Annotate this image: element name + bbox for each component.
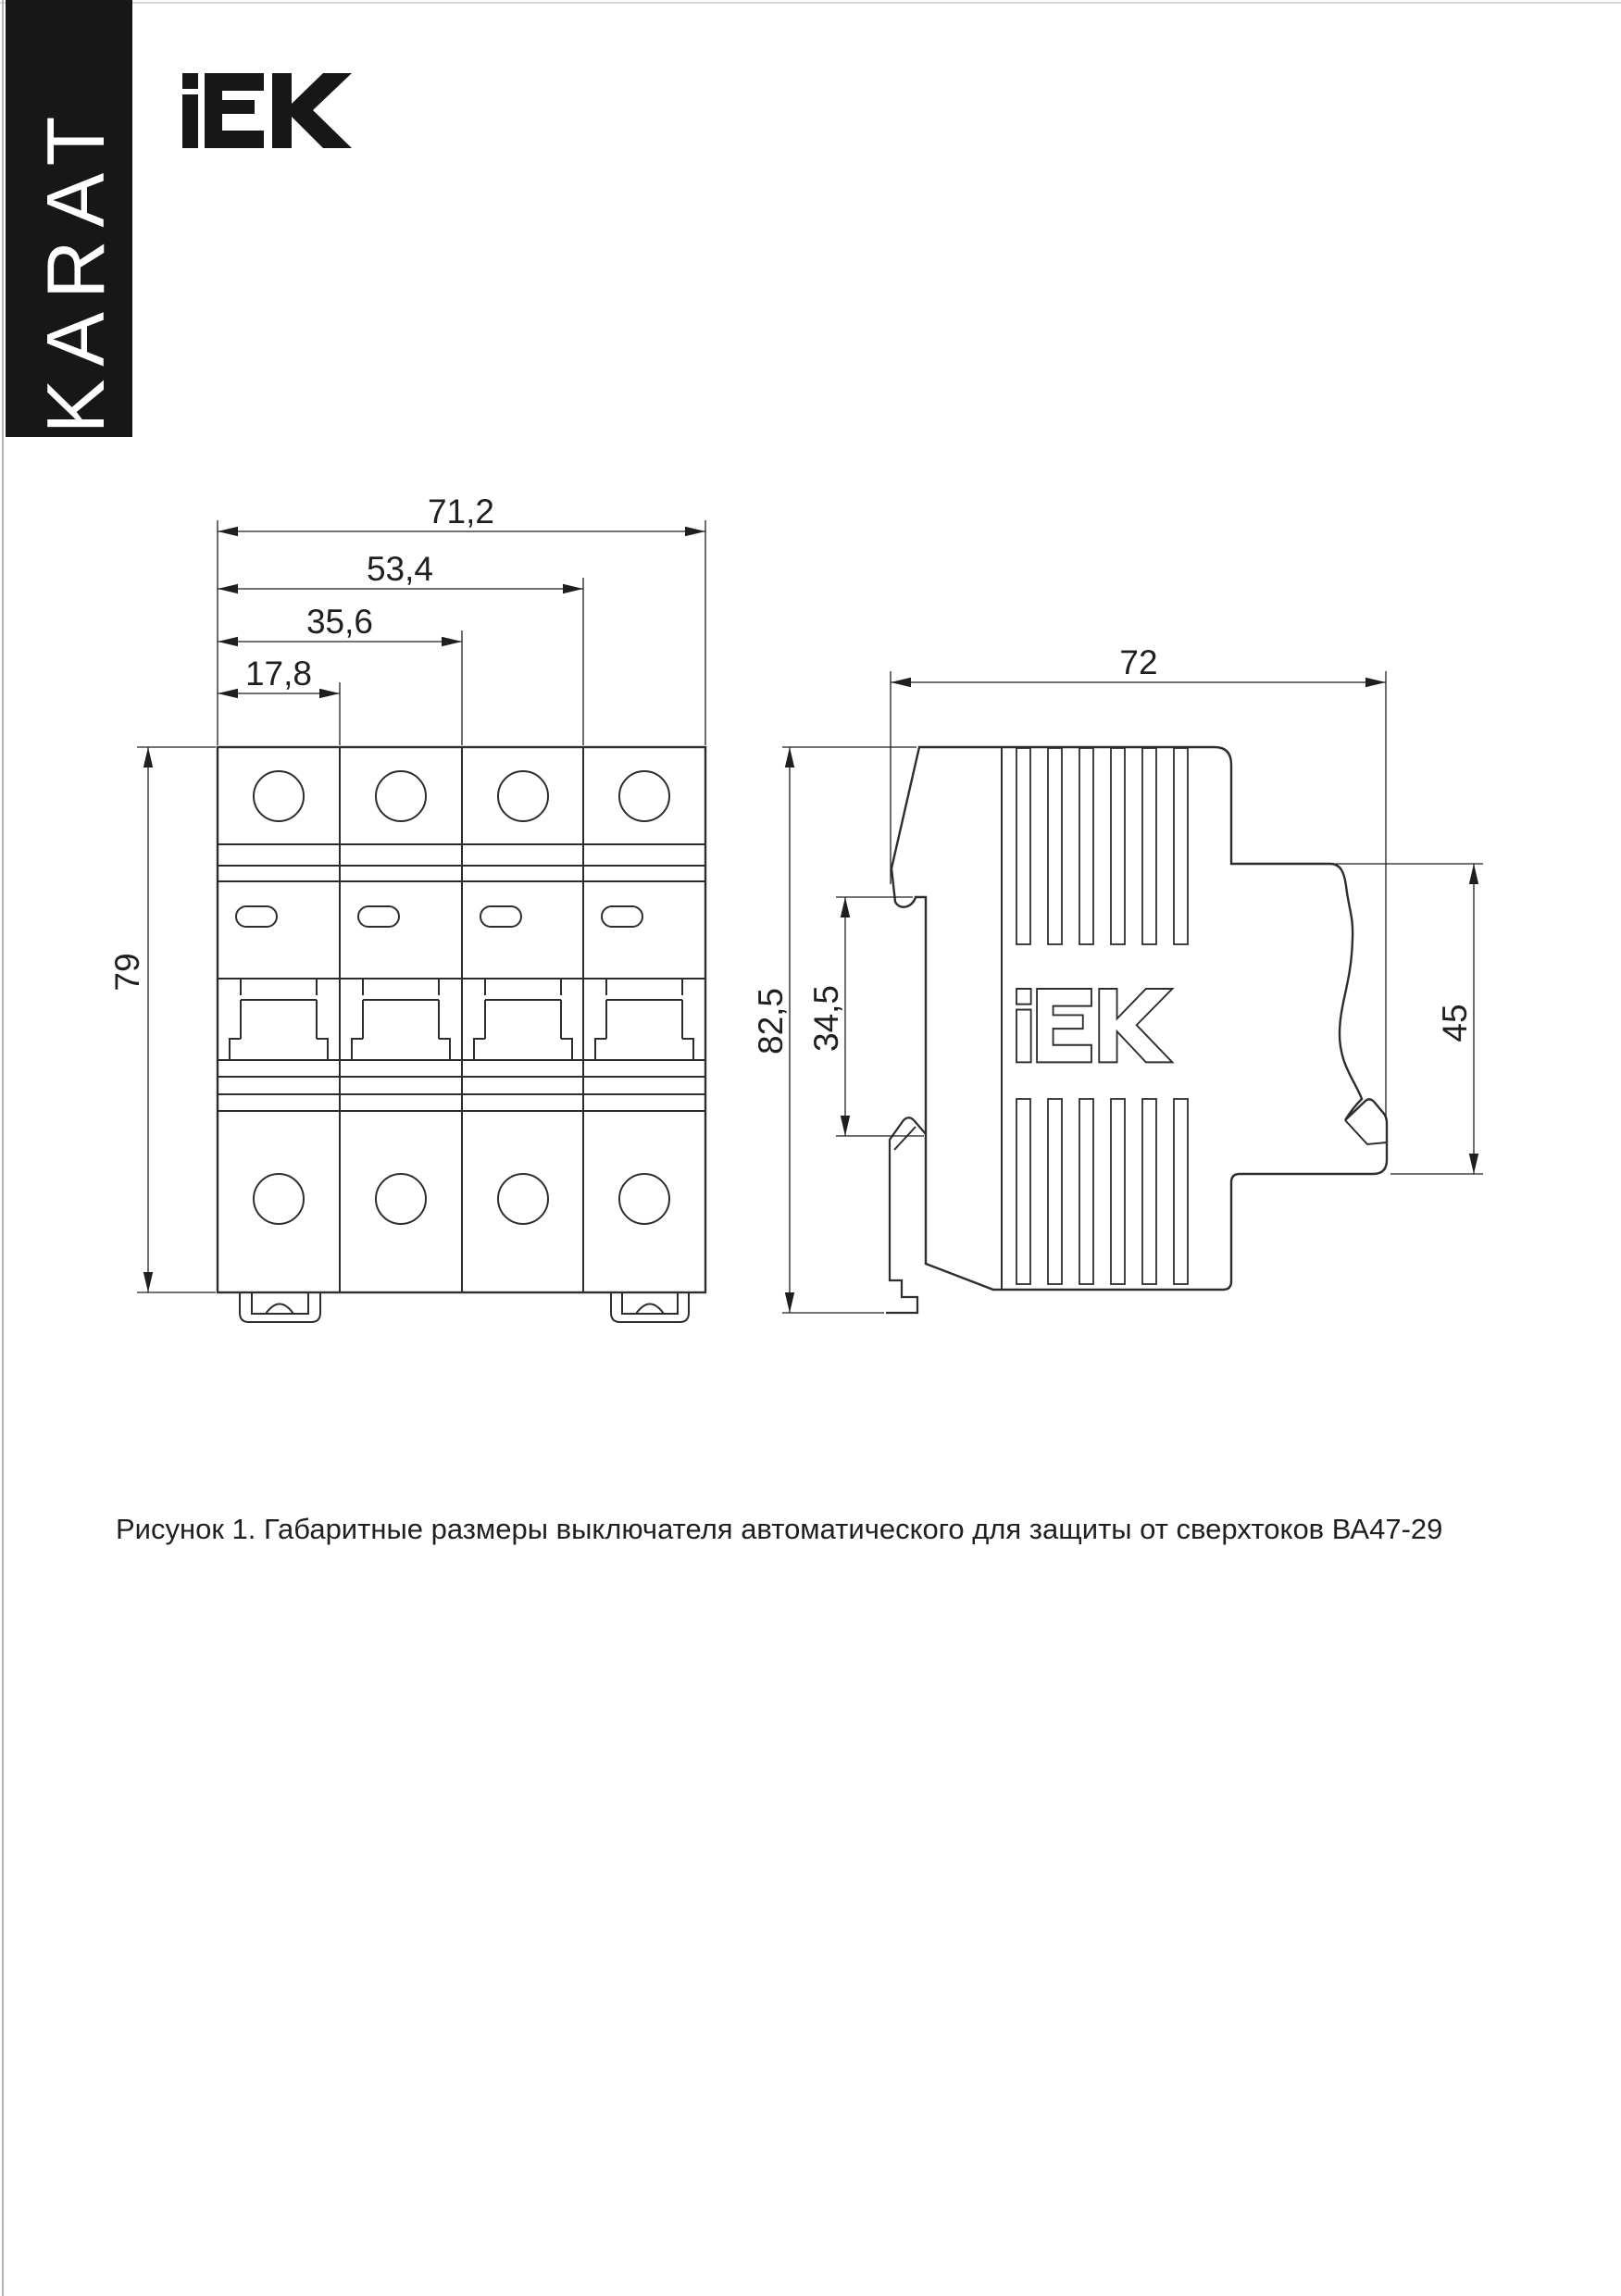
marking-window xyxy=(480,906,521,927)
terminal-screw xyxy=(376,771,426,821)
marking-window xyxy=(602,906,642,927)
dim-label-width-three: 53,4 xyxy=(367,550,433,588)
dim-label-width-total: 71,2 xyxy=(428,493,494,530)
din-clip-front xyxy=(240,1292,320,1322)
side-view-drawing xyxy=(886,747,1387,1313)
front-view-drawing xyxy=(218,747,705,1322)
terminal-screw xyxy=(498,1174,548,1224)
iek-logo-i-stem xyxy=(182,94,198,148)
side-view-dim-labels: 72 82,5 34,5 45 xyxy=(752,643,1474,1054)
side-body-outline xyxy=(892,747,1387,1290)
iek-logo xyxy=(182,73,352,148)
terminal-screw xyxy=(254,1174,304,1224)
dim-label-height-total: 82,5 xyxy=(752,988,790,1054)
terminal-screw xyxy=(376,1174,426,1224)
clip-tooth xyxy=(1345,1120,1387,1144)
iek-logo-k xyxy=(272,73,352,148)
marking-window xyxy=(236,906,277,927)
dim-label-width-one: 17,8 xyxy=(245,655,312,693)
front-view-dim-labels: 71,2 53,4 35,6 17,8 79 xyxy=(108,493,494,992)
dimension-drawing-canvas: KARAT xyxy=(0,0,1621,2296)
karat-label: KARAT xyxy=(30,104,121,434)
dim-label-depth: 72 xyxy=(1119,643,1157,681)
dim-label-height: 79 xyxy=(108,953,146,991)
datasheet-page: KARAT xyxy=(0,0,1621,2296)
marking-window xyxy=(358,906,399,927)
terminal-screw xyxy=(498,771,548,821)
terminal-screw xyxy=(619,1174,669,1224)
iek-logo-embossed xyxy=(1016,989,1172,1062)
vent-slots-bottom xyxy=(1016,1099,1188,1284)
vent-slots-top xyxy=(1016,748,1188,944)
dim-label-terminal-zone: 45 xyxy=(1436,1004,1474,1042)
dim-label-width-two: 35,6 xyxy=(306,603,373,641)
din-clip-front xyxy=(611,1292,689,1322)
terminal-screw xyxy=(254,771,304,821)
figure-caption: Рисунок 1. Габаритные размеры выключател… xyxy=(116,1513,1442,1545)
terminal-screw xyxy=(619,771,669,821)
din-clip-side xyxy=(886,1117,926,1313)
dim-label-rail-channel: 34,5 xyxy=(807,985,845,1052)
iek-logo-i-dot xyxy=(182,73,198,89)
side-view-dimensions xyxy=(782,671,1483,1313)
iek-logo-e xyxy=(205,73,264,148)
karat-banner: KARAT xyxy=(6,0,132,437)
